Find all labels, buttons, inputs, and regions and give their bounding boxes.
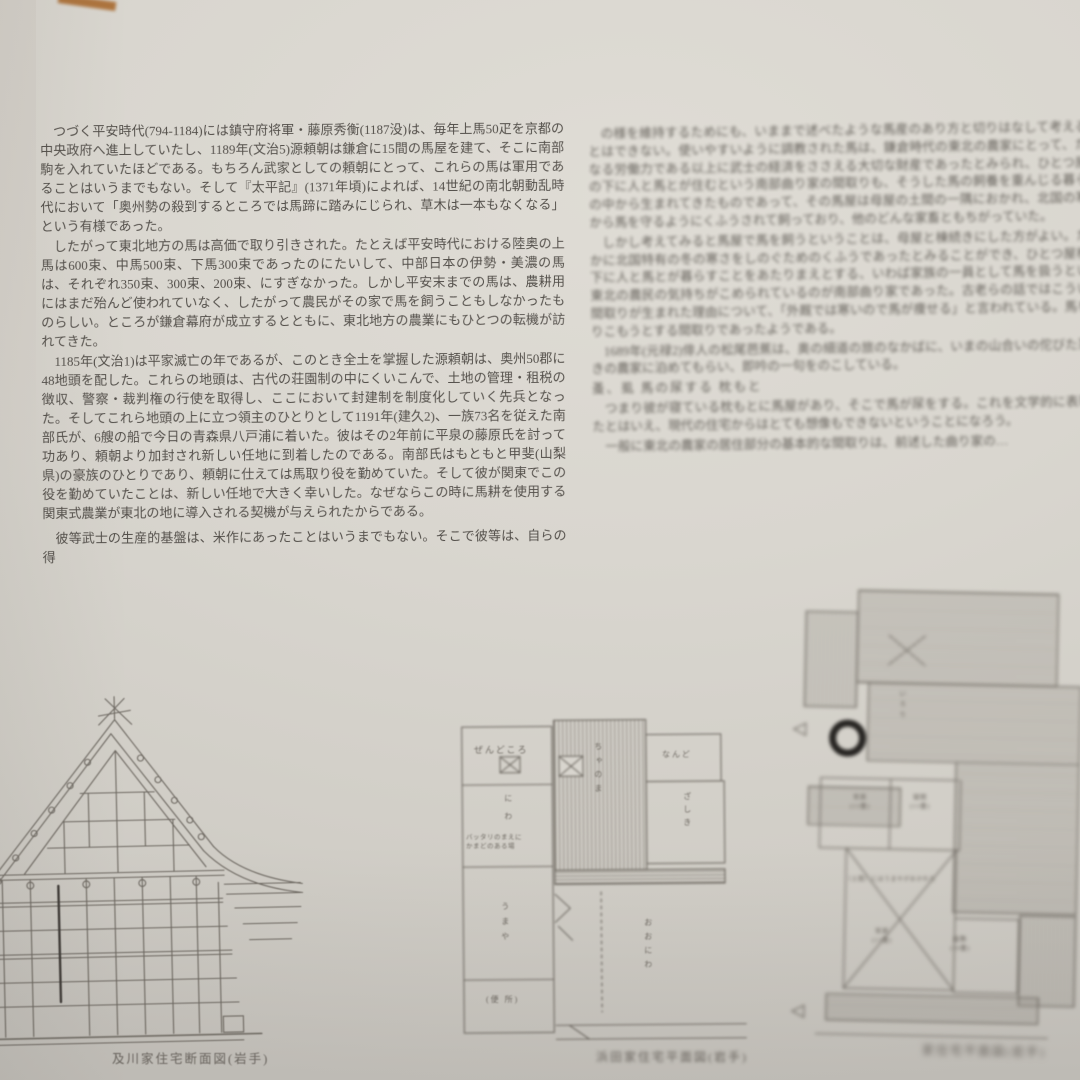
paragraph: しかし考えてみると馬屋で馬を飼うということは、母屋と棟続きにした方がよい。たしか… bbox=[590, 227, 1080, 341]
book-page-photo: つづく平安時代(794-1184)には鎮守府将軍・藤原秀衡(1187没)は、毎年… bbox=[0, 0, 1080, 1080]
room-label-oniwa: おおにわ bbox=[642, 918, 653, 974]
room-label-right-3: 常居 (13畳) bbox=[872, 928, 892, 946]
room-label-right-4: 座敷 (10畳) bbox=[950, 936, 970, 954]
floor-plan-center-caption: 浜田家住宅平面図(岩手) bbox=[596, 1048, 748, 1065]
right-text-column: の様を維持するためにも、いままで述べたような馬産のあり方と切りはなして考えること… bbox=[588, 118, 1080, 456]
underlying-page-edge bbox=[0, 0, 36, 520]
room-label-benjo: (便 所) bbox=[486, 995, 519, 1006]
room-label-nando: なんど bbox=[662, 750, 692, 761]
room-label-right-1: 常居 (13畳) bbox=[850, 794, 870, 812]
page-corner-highlight bbox=[58, 0, 117, 11]
paragraph: 彼等武士の生産的基盤は、米作にあったことはいうまでもない。そこで彼等は、自らの得 bbox=[42, 526, 566, 567]
paragraph: 1689年(元禄2)俳人の松尾芭蕉は、奥の細道の旅のなかばに、いまの山合いの佗び… bbox=[591, 336, 1080, 379]
cross-section-caption: 及川家住宅断面図(岩手) bbox=[112, 1048, 269, 1067]
paragraph: したがって東北地方の馬は高価で取り引きされた。たとえば平安時代における陸奥の上馬… bbox=[41, 234, 566, 351]
floor-plan-right-drawing bbox=[785, 581, 1080, 1053]
paragraph: つまり彼が寝ている枕もとに馬屋があり、そこで馬が尿をする。これを文学的に表現した… bbox=[592, 393, 1080, 436]
room-label-zendokoro: ぜんどころ bbox=[474, 744, 528, 756]
room-label-right-2: 寝間 (13畳) bbox=[910, 794, 930, 812]
room-label-chanoma: ちゃのま bbox=[592, 742, 603, 798]
left-text-column: つづく平安時代(794-1184)には鎮守府将軍・藤原秀衡(1187没)は、毎年… bbox=[40, 119, 567, 567]
room-label-umaya: うまや bbox=[499, 902, 510, 947]
paragraph: の様を維持するためにも、いままで述べたような馬産のあり方と切りはなして考えること… bbox=[588, 118, 1080, 232]
plan-annotation: バッタリのまえに かまどのある場 bbox=[466, 834, 558, 852]
paragraph: つづく平安時代(794-1184)には鎮守府将軍・藤原秀衡(1187没)は、毎年… bbox=[40, 119, 565, 236]
cross-section-figure bbox=[0, 685, 306, 1056]
floor-plan-right-figure bbox=[785, 581, 1080, 1053]
floor-plan-right-caption: 家住宅平面図(岩手) bbox=[922, 1041, 1046, 1060]
paragraph: 1185年(文治1)は平家滅亡の年であるが、このとき全土を掌握した源頼朝は、奥州… bbox=[41, 349, 566, 523]
room-label-zashiki: ざしき bbox=[681, 792, 692, 831]
room-label-irori: いろり bbox=[896, 690, 905, 722]
room-label-doma: （土間）にはうまやがおかれた bbox=[845, 876, 963, 884]
cross-section-drawing bbox=[0, 685, 306, 1056]
room-label-niwa: にわ bbox=[502, 794, 513, 830]
